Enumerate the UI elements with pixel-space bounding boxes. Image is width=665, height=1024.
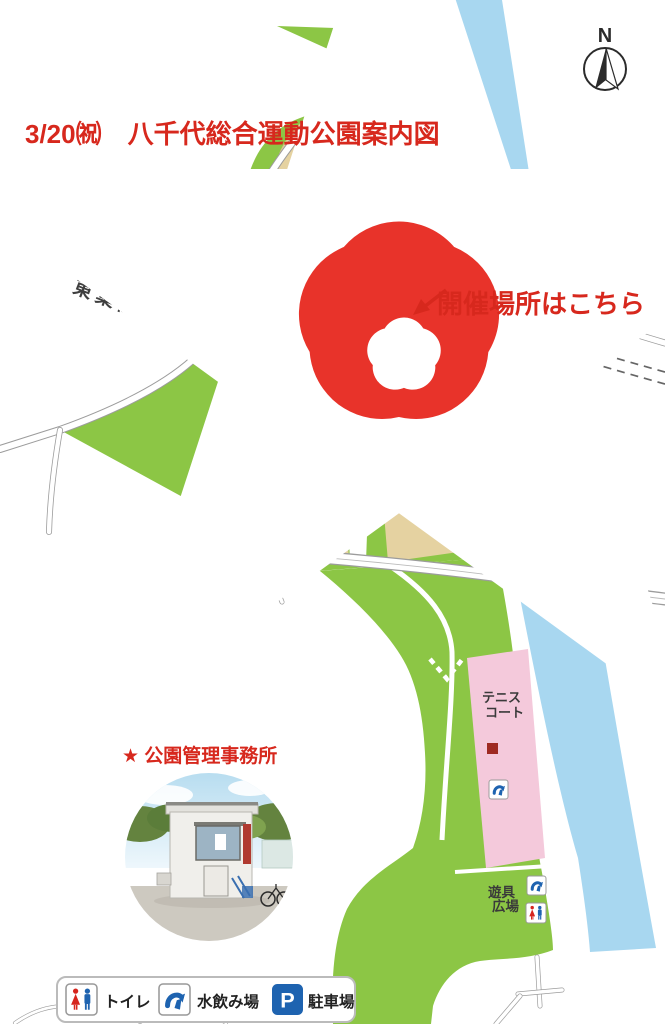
svg-text:テニス: テニス <box>482 690 521 705</box>
toilet-icon <box>526 903 546 923</box>
compass-rose: N <box>584 25 626 90</box>
playground-label: 遊具 広場 <box>488 884 520 914</box>
park-guide-map: 東葉高速鉄道 八千代市 市民体育館 八千代 総合運動公園 野球場 テニス コート… <box>0 0 665 1024</box>
water-fountain-icon <box>159 984 190 1015</box>
water-fountain-icon <box>489 780 508 799</box>
legend-parking-label: 駐車場 <box>308 992 355 1011</box>
legend-water-label: 水飲み場 <box>197 992 260 1011</box>
office-heading: ★ 公園管理事務所 <box>122 744 277 767</box>
event-star-small <box>390 340 419 367</box>
event-callout-label: 開催場所はこちら <box>437 289 645 319</box>
water-fountain-icon <box>527 876 546 895</box>
svg-text:コート: コート <box>485 705 524 720</box>
toilet-icon <box>66 984 97 1015</box>
court-building <box>487 743 498 754</box>
parking-icon: P <box>272 984 303 1015</box>
map-svg: 東葉高速鉄道 八千代市 市民体育館 八千代 総合運動公園 野球場 テニス コート… <box>0 0 665 1024</box>
svg-text:広場: 広場 <box>492 898 520 914</box>
compass-n-label: N <box>598 25 612 47</box>
svg-text:遊具: 遊具 <box>488 884 516 900</box>
office-photo <box>110 773 309 946</box>
svg-text:P: P <box>280 988 294 1013</box>
tennis-south-label: テニス コート <box>482 690 524 720</box>
legend-box: トイレ 水飲み場 P 駐車場 <box>57 977 355 1022</box>
legend-toilet-label: トイレ <box>104 994 151 1011</box>
page-title: 3/20㈷ 八千代総合運動公園案内図 <box>25 119 440 149</box>
